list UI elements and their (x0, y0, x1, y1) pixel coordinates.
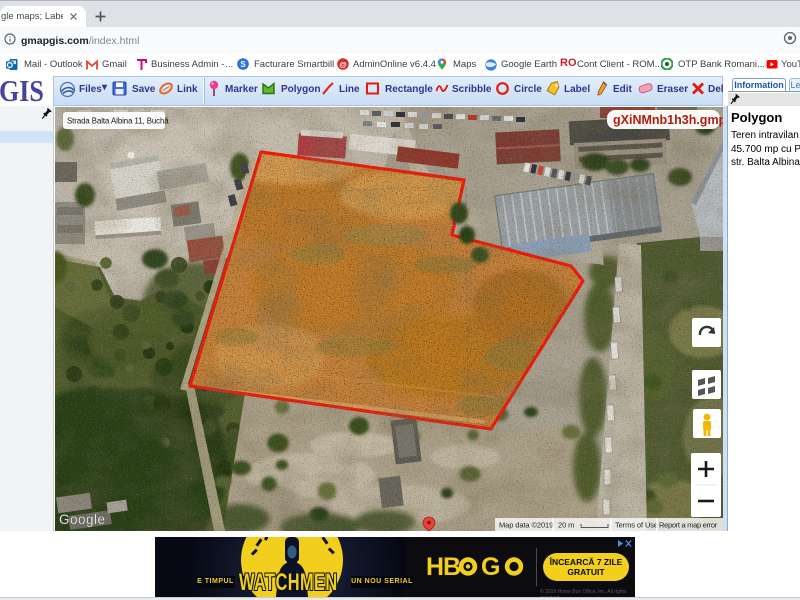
svg-text:20 m: 20 m (558, 521, 574, 530)
svg-text:HB: HB (426, 553, 460, 580)
svg-text:Report a map error: Report a map error (659, 521, 718, 530)
svg-text:G: G (481, 553, 499, 580)
svg-text:gXiNMnb1h3h.gmp: gXiNMnb1h3h.gmp (613, 113, 723, 127)
svg-text:Google: Google (59, 512, 106, 527)
svg-text:Map data ©2019: Map data ©2019 (499, 521, 553, 530)
svg-text:Terms of Use: Terms of Use (615, 521, 658, 530)
svg-text:@: @ (339, 60, 346, 69)
svg-text:S: S (240, 60, 246, 69)
svg-text:Strada Balta Albina 11, Buchă: Strada Balta Albina 11, Buchă (67, 117, 169, 126)
